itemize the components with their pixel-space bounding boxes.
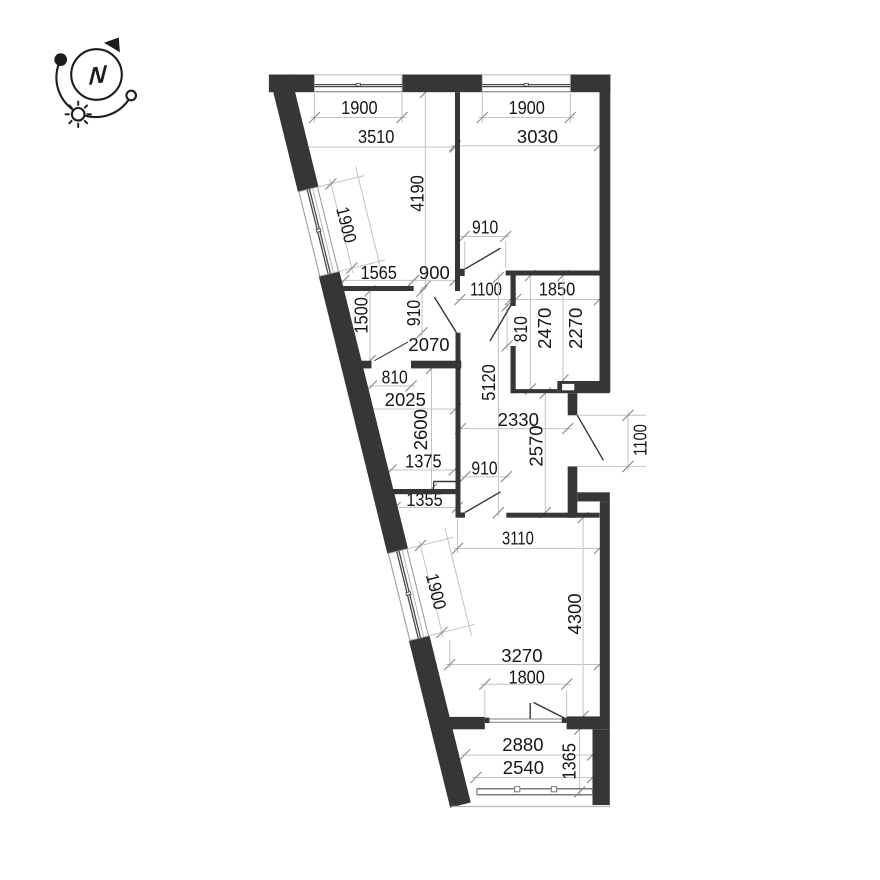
svg-text:1850: 1850 [539, 279, 576, 299]
svg-text:2025: 2025 [385, 390, 426, 410]
svg-text:1800: 1800 [508, 667, 545, 687]
svg-text:910: 910 [472, 217, 498, 237]
svg-text:1500: 1500 [351, 297, 371, 334]
svg-text:1365: 1365 [560, 743, 580, 780]
svg-text:3030: 3030 [517, 127, 558, 147]
svg-text:1100: 1100 [470, 279, 502, 299]
svg-text:910: 910 [404, 300, 424, 326]
svg-text:1565: 1565 [360, 263, 397, 283]
svg-text:3510: 3510 [358, 127, 395, 147]
svg-text:2570: 2570 [527, 425, 547, 466]
svg-text:1900: 1900 [508, 98, 545, 118]
svg-text:2540: 2540 [503, 758, 544, 778]
svg-text:1100: 1100 [630, 424, 650, 456]
svg-text:810: 810 [511, 316, 531, 342]
svg-text:810: 810 [382, 367, 408, 387]
svg-text:2880: 2880 [502, 735, 543, 755]
svg-text:910: 910 [471, 459, 497, 479]
svg-text:4190: 4190 [408, 175, 428, 212]
svg-text:2600: 2600 [411, 409, 431, 450]
svg-text:5120: 5120 [479, 364, 499, 401]
svg-text:1900: 1900 [341, 98, 378, 118]
svg-text:3270: 3270 [501, 646, 542, 666]
svg-text:4300: 4300 [565, 593, 585, 634]
svg-text:3110: 3110 [502, 528, 534, 548]
svg-text:2470: 2470 [535, 308, 555, 349]
svg-text:2070: 2070 [408, 335, 449, 355]
svg-text:900: 900 [419, 263, 450, 283]
svg-text:2270: 2270 [566, 308, 586, 349]
svg-text:1375: 1375 [405, 451, 442, 471]
